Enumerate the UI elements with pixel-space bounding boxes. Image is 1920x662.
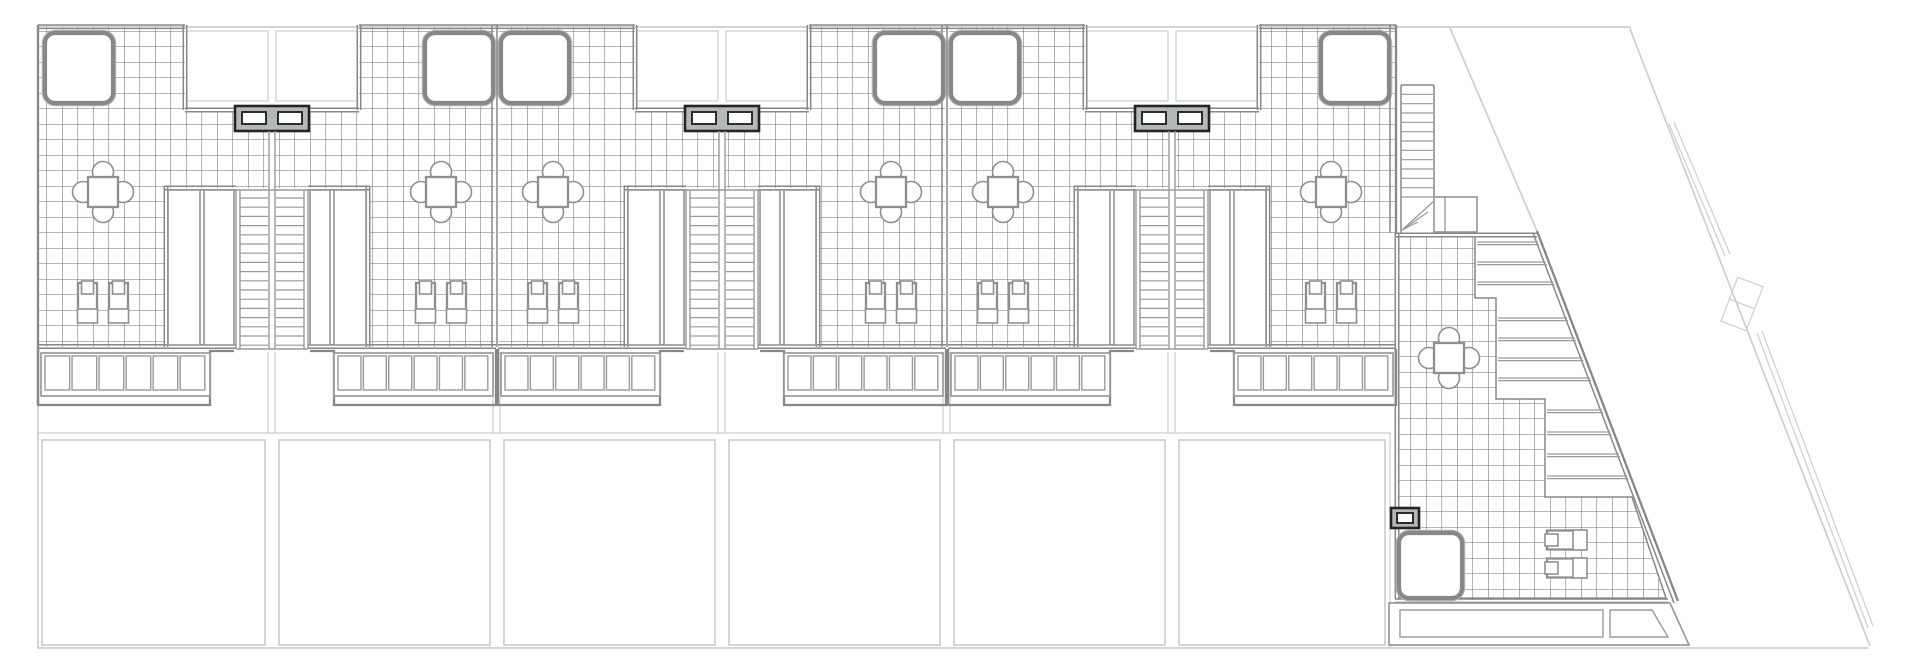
roof-skylight	[45, 33, 113, 103]
courtyard-below-3	[1176, 31, 1257, 101]
sun-lounger	[1545, 530, 1587, 550]
lounger-pillow	[1310, 281, 1322, 294]
dining-table	[1434, 343, 1464, 373]
ground-plot-3	[504, 440, 715, 645]
lounger-pillow	[113, 281, 125, 294]
winder-tread	[1402, 201, 1434, 230]
rooflight-strip	[664, 190, 684, 345]
dining-table	[88, 177, 118, 207]
sun-lounger	[1009, 281, 1029, 323]
roof-skylight	[951, 33, 1019, 103]
stair-landing	[1434, 197, 1477, 232]
pergola-slats	[41, 353, 210, 396]
lounger-foot	[416, 309, 436, 323]
roof-skylight	[1321, 33, 1389, 103]
dining-table	[538, 177, 568, 207]
vent-grille	[1142, 112, 1166, 124]
courtyard-below-1	[276, 31, 357, 101]
lounger-foot	[1009, 309, 1029, 323]
rooflight-strip	[310, 190, 330, 345]
ac-vent-unit	[235, 106, 309, 131]
ground-plot-6	[1179, 440, 1385, 645]
pergola-slats	[501, 353, 660, 396]
roof-skylight	[1399, 533, 1462, 598]
lounger-foot	[528, 309, 548, 323]
roof-plan-drawing	[0, 0, 1920, 662]
ground-plot-4	[729, 440, 940, 645]
gate-divider	[1729, 299, 1754, 309]
sun-lounger	[1337, 281, 1357, 323]
vent-grille	[278, 112, 302, 124]
sun-lounger	[78, 281, 98, 323]
sun-lounger	[1306, 281, 1326, 323]
lounger-foot	[447, 309, 467, 323]
courtyard-below-2	[637, 31, 718, 101]
ac-vent-unit	[1135, 106, 1209, 131]
dining-table	[876, 177, 906, 207]
ground-plot-2	[279, 440, 490, 645]
site-gate	[1721, 277, 1763, 331]
roof-skylight	[501, 33, 569, 103]
sun-lounger	[528, 281, 548, 323]
lounger-pillow	[563, 281, 575, 294]
ground-plot-1	[42, 440, 265, 645]
house-6	[1172, 25, 1396, 405]
pergola-slats	[334, 353, 493, 396]
neighbor-wall-segment	[1674, 122, 1730, 254]
courtyard-below-2	[726, 31, 807, 101]
courtyard-below-1	[187, 31, 268, 101]
winder-tread	[1402, 212, 1428, 230]
sun-lounger	[897, 281, 917, 323]
lounger-pillow	[870, 281, 882, 294]
sun-lounger	[866, 281, 886, 323]
lounger-pillow	[901, 281, 913, 294]
terrace-layer	[38, 25, 1689, 645]
courtyard-below-3	[1087, 31, 1168, 101]
lounger-foot	[866, 309, 886, 323]
rooflight-strip	[1234, 190, 1266, 345]
vent-grille	[1397, 513, 1413, 523]
sun-lounger	[1545, 558, 1587, 578]
site-diagonal-double	[1762, 331, 1873, 626]
lounger-foot	[78, 309, 98, 323]
lounger-foot	[1306, 309, 1326, 323]
ground-plot-5	[954, 440, 1165, 645]
lounger-pillow	[532, 281, 544, 294]
dining-table	[988, 177, 1018, 207]
sun-lounger	[109, 281, 129, 323]
sun-lounger	[447, 281, 467, 323]
lounger-pillow	[420, 281, 432, 294]
roof-skylight	[875, 33, 943, 103]
sun-lounger	[559, 281, 579, 323]
vent-grille	[1178, 112, 1202, 124]
vent-grille	[692, 112, 716, 124]
site-diagonal-double	[1757, 333, 1868, 628]
site-outer-diagonal	[1630, 29, 1870, 646]
dining-table	[1316, 177, 1346, 207]
house-5	[947, 25, 1172, 405]
lounger-foot	[1573, 558, 1587, 578]
rooflight-strip	[1114, 190, 1134, 345]
pergola-slats	[784, 353, 943, 396]
roof-plan-canvas	[0, 0, 1920, 662]
lounger-pillow	[451, 281, 463, 294]
lounger-foot	[559, 309, 579, 323]
house-3	[497, 25, 722, 405]
lounger-foot	[1573, 530, 1587, 550]
house-4	[722, 25, 947, 405]
sun-lounger	[978, 281, 998, 323]
site-diagonal-tick	[1630, 27, 1634, 40]
rooflight-strip	[760, 190, 780, 345]
lounger-pillow	[1545, 534, 1558, 546]
sun-lounger	[416, 281, 436, 323]
lounger-foot	[1337, 309, 1357, 323]
vent-grille	[728, 112, 752, 124]
rooflight-strip	[204, 190, 234, 345]
lounger-pillow	[82, 281, 94, 294]
house-2	[272, 25, 497, 405]
lounger-foot	[109, 309, 129, 323]
lounger-pillow	[1545, 562, 1558, 574]
neighbor-wall-segment	[1669, 124, 1725, 256]
rooflight-strip	[784, 190, 816, 345]
ac-vent-unit	[685, 106, 759, 131]
lounger-pillow	[1013, 281, 1025, 294]
vent-grille	[242, 112, 266, 124]
lounger-pillow	[1341, 281, 1353, 294]
pergola-slats	[1234, 353, 1393, 396]
rooflight-strip	[1078, 190, 1110, 345]
dining-table	[426, 177, 456, 207]
lounger-pillow	[982, 281, 994, 294]
rooflight-strip	[334, 190, 366, 345]
rooflight-strip	[1210, 190, 1230, 345]
house-1	[38, 25, 272, 405]
roof-skylight	[425, 33, 493, 103]
pergola-slats	[951, 353, 1110, 396]
lounger-foot	[897, 309, 917, 323]
house-7-corner	[1389, 85, 1689, 645]
lounger-foot	[978, 309, 998, 323]
rooflight-strip	[168, 190, 200, 345]
rooflight-strip	[628, 190, 660, 345]
